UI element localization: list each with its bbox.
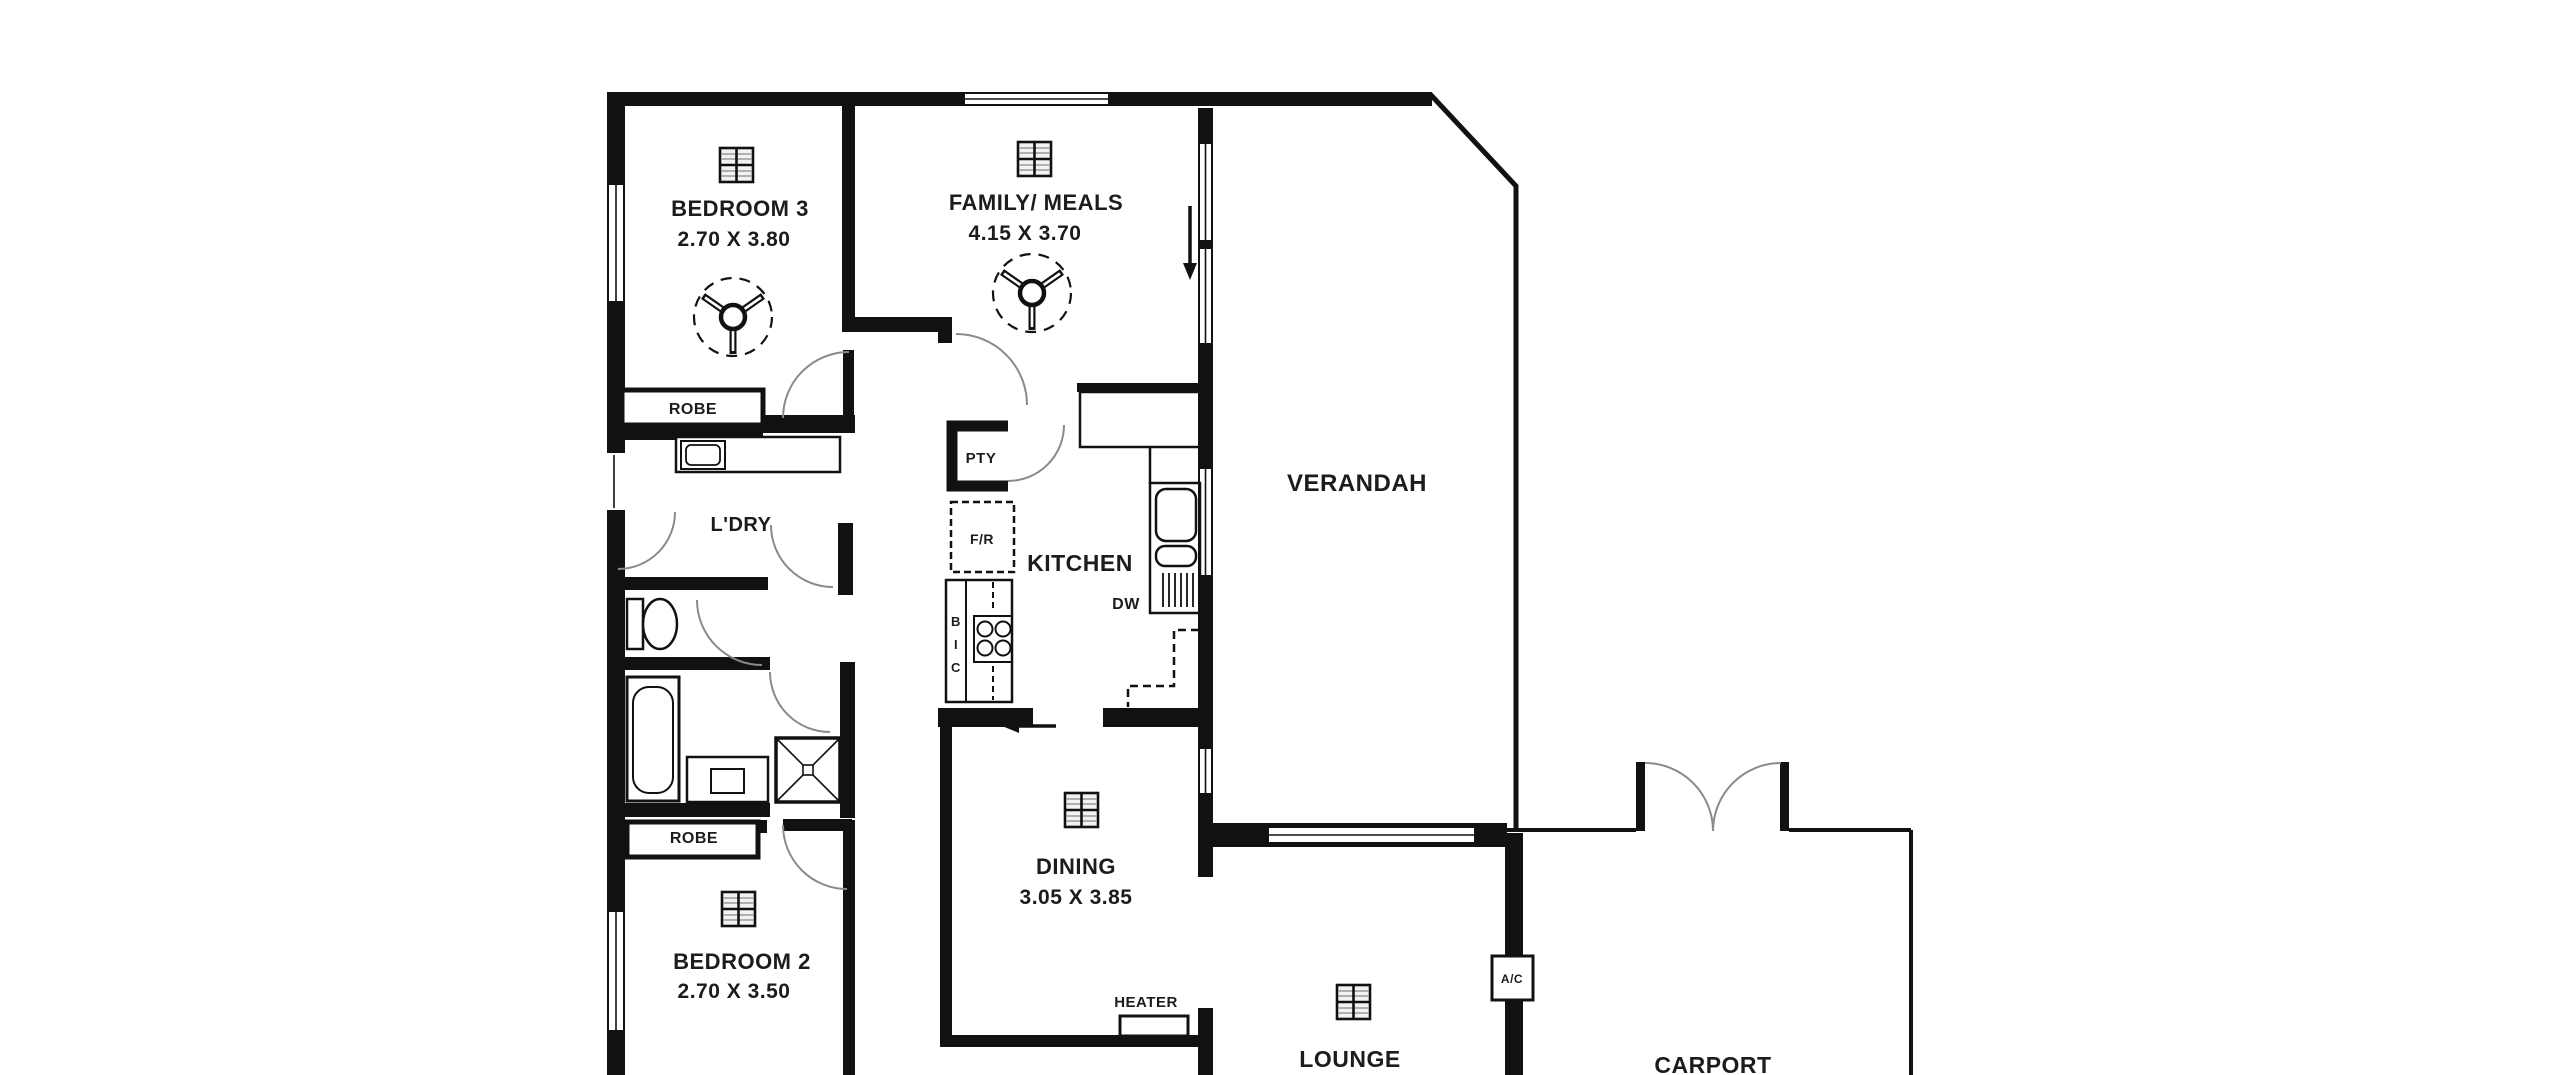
- carport-door-jamb: [1780, 762, 1789, 831]
- wall-segment: [607, 1032, 625, 1075]
- kitchen-label: KITCHEN: [1027, 550, 1133, 576]
- wall-segment: [1198, 242, 1213, 247]
- wall-segment: [940, 727, 952, 1037]
- window: [964, 93, 1109, 105]
- wall-segment: [1103, 708, 1203, 727]
- carport-door-jamb: [1636, 762, 1645, 831]
- window: [608, 911, 624, 1031]
- dishwasher-label: DW: [1112, 596, 1140, 613]
- cooktop-burners: [978, 622, 1011, 656]
- floorplan-canvas: BEDROOM 3 2.70 X 3.80 FAMILY/ MEALS 4.15…: [0, 0, 2560, 1075]
- wall-segment: [938, 317, 952, 343]
- ceiling-fan-icon: [694, 278, 772, 356]
- family-meals-dims: 4.15 X 3.70: [969, 222, 1082, 245]
- wall-segment: [843, 820, 855, 833]
- heater-unit: [1120, 1016, 1188, 1036]
- wall-segment: [607, 92, 625, 183]
- toilet-cistern: [627, 599, 643, 649]
- robe-top-label: ROBE: [669, 401, 717, 418]
- ceiling-fan-icon: [993, 254, 1071, 332]
- door-arc: [956, 334, 1027, 405]
- wall-segment: [1077, 383, 1213, 392]
- wall-segment: [1198, 795, 1213, 877]
- door-arc: [771, 525, 833, 587]
- down-arrow-icon: [1183, 206, 1197, 280]
- wall-segment: [840, 662, 855, 818]
- laundry-label: L'DRY: [711, 514, 772, 536]
- heating-vent-icon: [722, 892, 755, 926]
- wall-segment: [760, 415, 855, 433]
- sink-bowl: [1156, 489, 1196, 541]
- heating-vent-icon: [720, 148, 753, 182]
- window: [608, 184, 624, 302]
- door-arc: [697, 600, 762, 665]
- fridge-label: F/R: [970, 531, 994, 547]
- bedroom2-label: BEDROOM 2: [673, 949, 811, 974]
- sink-bowl: [1156, 546, 1196, 566]
- laundry-tub-inner: [686, 445, 720, 465]
- heater-label: HEATER: [1114, 994, 1178, 1011]
- return-bench-dashed: [1128, 630, 1199, 707]
- carport-label: CARPORT: [1654, 1052, 1771, 1075]
- wall-segment: [607, 803, 770, 817]
- kitchen-bench: [1080, 392, 1200, 447]
- vanity-basin: [711, 769, 744, 793]
- bic-label-i: I: [954, 637, 958, 652]
- carport-edge: [1507, 830, 1911, 1075]
- wall-segment: [838, 523, 853, 595]
- door-leaf: [843, 350, 854, 420]
- verandah-label: VERANDAH: [1287, 470, 1427, 497]
- verandah-outline: [1430, 94, 1516, 830]
- bic-label-c: C: [951, 660, 961, 675]
- wall-segment: [607, 577, 768, 590]
- bic-label-b: B: [951, 614, 961, 629]
- carport-door-arc: [1713, 763, 1781, 831]
- bedroom2-dims: 2.70 X 3.50: [678, 980, 791, 1003]
- dishwasher-lines: [1163, 573, 1193, 607]
- door-opening: [607, 453, 625, 510]
- wall-segment: [842, 106, 855, 332]
- bedroom3-label: BEDROOM 3: [671, 196, 809, 221]
- window: [1268, 827, 1475, 843]
- door-arc: [770, 672, 830, 732]
- room-labels: BEDROOM 3 2.70 X 3.80 FAMILY/ MEALS 4.15…: [671, 190, 1771, 1075]
- heating-vent-icon: [1337, 985, 1370, 1019]
- door-leaf: [783, 819, 852, 831]
- dining-dims: 3.05 X 3.85: [1020, 886, 1133, 909]
- door-arc: [618, 512, 675, 569]
- window: [1199, 248, 1212, 344]
- bedroom3-dims: 2.70 X 3.80: [678, 228, 791, 251]
- heating-vent-icon: [1065, 793, 1098, 827]
- dining-label: DINING: [1036, 854, 1116, 879]
- door-arc: [783, 825, 847, 889]
- wall-segment: [607, 510, 625, 910]
- bathtub-inner: [633, 687, 673, 793]
- wall-segment: [607, 92, 963, 106]
- shower: [776, 738, 840, 802]
- wall-segment: [1198, 108, 1213, 142]
- window: [1199, 143, 1212, 241]
- bathroom-fixtures: [627, 599, 840, 802]
- wall-segment: [1505, 833, 1523, 1075]
- toilet-bowl: [643, 599, 677, 649]
- window: [1199, 748, 1212, 794]
- carport-door-arc: [1645, 763, 1713, 831]
- carport-outline: [1507, 763, 1911, 1075]
- wall-segment: [855, 317, 952, 332]
- family-meals-label: FAMILY/ MEALS: [949, 190, 1123, 215]
- door-arc: [1008, 425, 1064, 481]
- lounge-label: LOUNGE: [1299, 1046, 1400, 1072]
- wall-segment: [1110, 92, 1432, 106]
- laundry-fixtures: [676, 437, 840, 472]
- heating-vent-icon: [1018, 142, 1051, 176]
- pantry-label: PTY: [966, 450, 997, 467]
- floorplan-svg: BEDROOM 3 2.70 X 3.80 FAMILY/ MEALS 4.15…: [0, 0, 2560, 1075]
- robe-bottom-label: ROBE: [670, 830, 718, 847]
- door-arc: [783, 352, 849, 418]
- wall-segment: [843, 833, 855, 1075]
- wall-segment: [1198, 1008, 1213, 1075]
- ac-label: A/C: [1501, 972, 1523, 986]
